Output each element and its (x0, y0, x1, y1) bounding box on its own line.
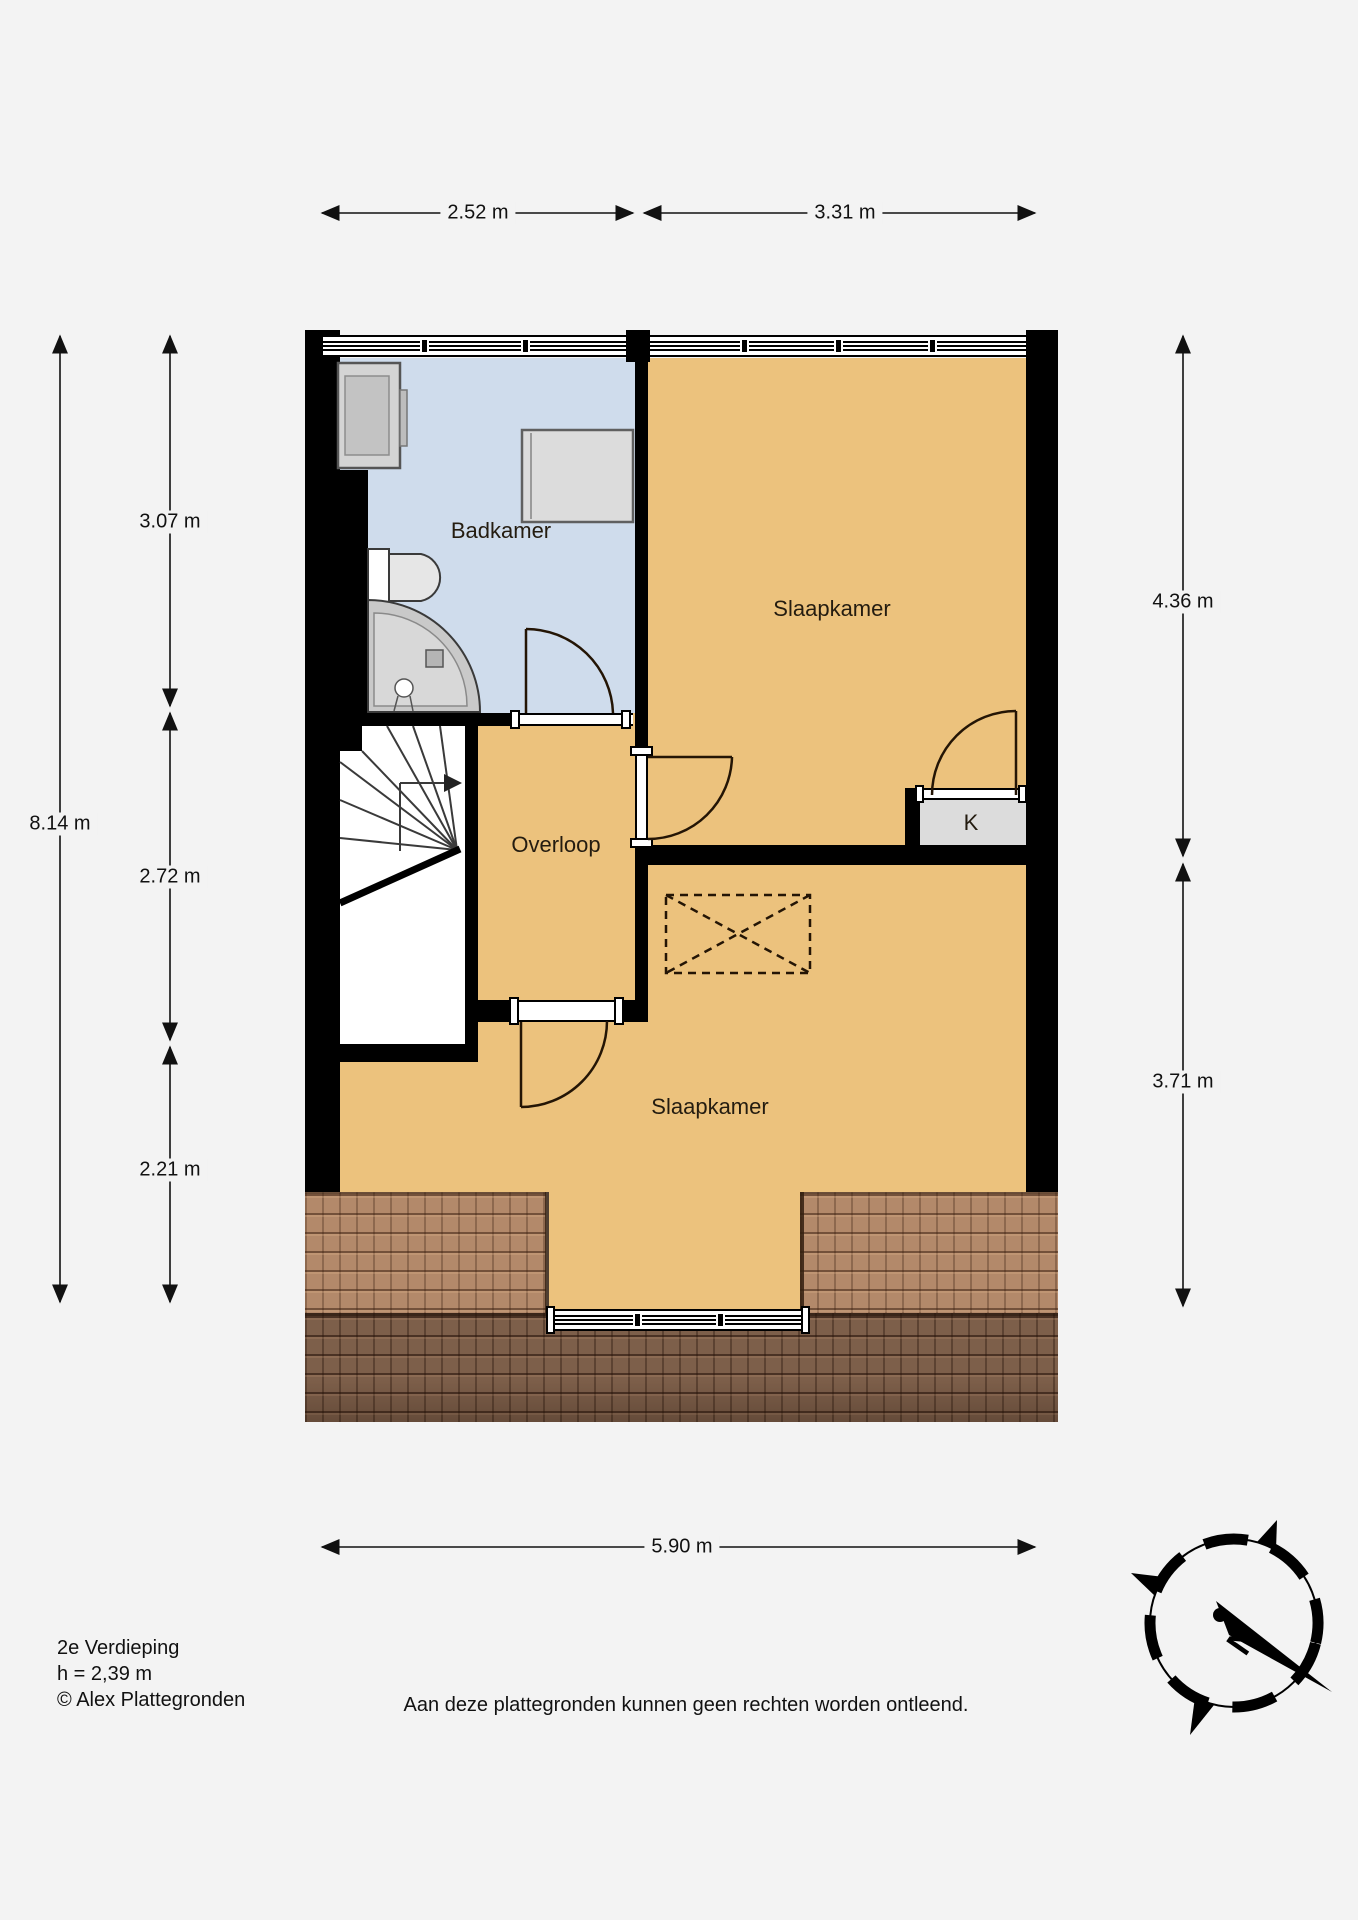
compass-spike-ne (1257, 1520, 1277, 1550)
compass-spike-w (1131, 1573, 1164, 1596)
window-divider (521, 340, 530, 352)
dim-right-seg-2: 3.71 m (1145, 1071, 1220, 1094)
roof-flank-right (800, 1192, 1058, 1313)
dim-bottom: 5.90 m (644, 1536, 719, 1559)
compass-rose: N (1119, 1508, 1349, 1738)
window-post (546, 1306, 555, 1334)
wall-overloop-bottom-left (465, 1000, 514, 1022)
doorpost (510, 710, 520, 729)
window-slaapkamer-top (650, 335, 1026, 357)
doorpost (509, 997, 519, 1025)
dim-left-seg-3: 2.21 m (132, 1159, 207, 1182)
wall-right (1026, 330, 1058, 1192)
window-divider (740, 340, 749, 352)
window-divider (633, 1314, 642, 1326)
window-glass (323, 341, 626, 351)
footer-floor-name: 2e Verdieping (57, 1637, 179, 1660)
doorpost (915, 785, 924, 803)
doorpost (621, 710, 631, 729)
room-slaapkamer-bottom-mid (478, 1022, 1026, 1062)
wall-divider-badkamer-slaapkamer (635, 362, 648, 713)
window-divider (928, 340, 937, 352)
dormer-edge-right (800, 1192, 804, 1313)
room-overloop (478, 713, 635, 1022)
window-glass (553, 1315, 803, 1325)
wall-overloop-right-lower (635, 845, 648, 1022)
window-divider (716, 1314, 725, 1326)
doorpost (1018, 785, 1027, 803)
room-slaapkamer-bottom-main (340, 1062, 1026, 1192)
wall-badkamer-bottom (305, 713, 514, 726)
window-badkamer (323, 335, 626, 357)
wall-left-bathroom (305, 470, 368, 713)
compass-north-label: N (1218, 1617, 1266, 1662)
dim-top-right: 3.31 m (807, 202, 882, 225)
doorpost (630, 746, 653, 756)
window-post (801, 1306, 810, 1334)
doorframe-slaapkamer-bottom (514, 1000, 619, 1022)
dim-left-seg-1: 3.07 m (132, 511, 207, 534)
footer-ceiling-height: h = 2,39 m (57, 1663, 152, 1686)
wall-top-middle (626, 330, 650, 362)
floorplan-page: N Badkamer Slaapkamer Overloop Slaapkame… (0, 0, 1358, 1920)
doorpost (614, 997, 624, 1025)
room-label-slaapkamer-bottom: Slaapkamer (651, 1094, 768, 1120)
dim-left-seg-2: 2.72 m (132, 866, 207, 889)
wall-overloop-right-upper (635, 713, 648, 750)
footer-disclaimer: Aan deze plattegronden kunnen geen recht… (336, 1694, 1036, 1717)
dim-top-left: 2.52 m (440, 202, 515, 225)
wall-stairwell-bottom (305, 1044, 478, 1062)
wall-bedroom-divider (648, 845, 1058, 865)
doorframe-badkamer (514, 713, 633, 726)
room-label-badkamer: Badkamer (451, 518, 551, 544)
compass-spike-sw (1190, 1697, 1214, 1735)
dormer-edge-left (545, 1192, 549, 1313)
doorpost (630, 838, 653, 848)
doorframe-slaapkamer-top (635, 750, 648, 845)
compass-needle (1216, 1601, 1332, 1692)
doorframe-kast (920, 788, 1026, 800)
roof (305, 1192, 1058, 1422)
dim-left-total: 8.14 m (22, 813, 97, 836)
stairwell-area (340, 726, 465, 1062)
room-slaapkamer-bottom-right (648, 865, 1026, 1022)
compass-needle-hub (1213, 1608, 1227, 1622)
room-label-slaapkamer-top: Slaapkamer (773, 596, 890, 622)
room-label-kast: K (964, 810, 979, 836)
wall-left-lower (305, 713, 340, 1192)
window-divider (834, 340, 843, 352)
window-divider (420, 340, 429, 352)
footer-copyright: © Alex Plattegronden (57, 1689, 245, 1712)
window-dormer (553, 1309, 803, 1331)
roof-flank-left (305, 1192, 546, 1313)
room-label-overloop: Overloop (511, 832, 600, 858)
dim-right-seg-1: 4.36 m (1145, 591, 1220, 614)
